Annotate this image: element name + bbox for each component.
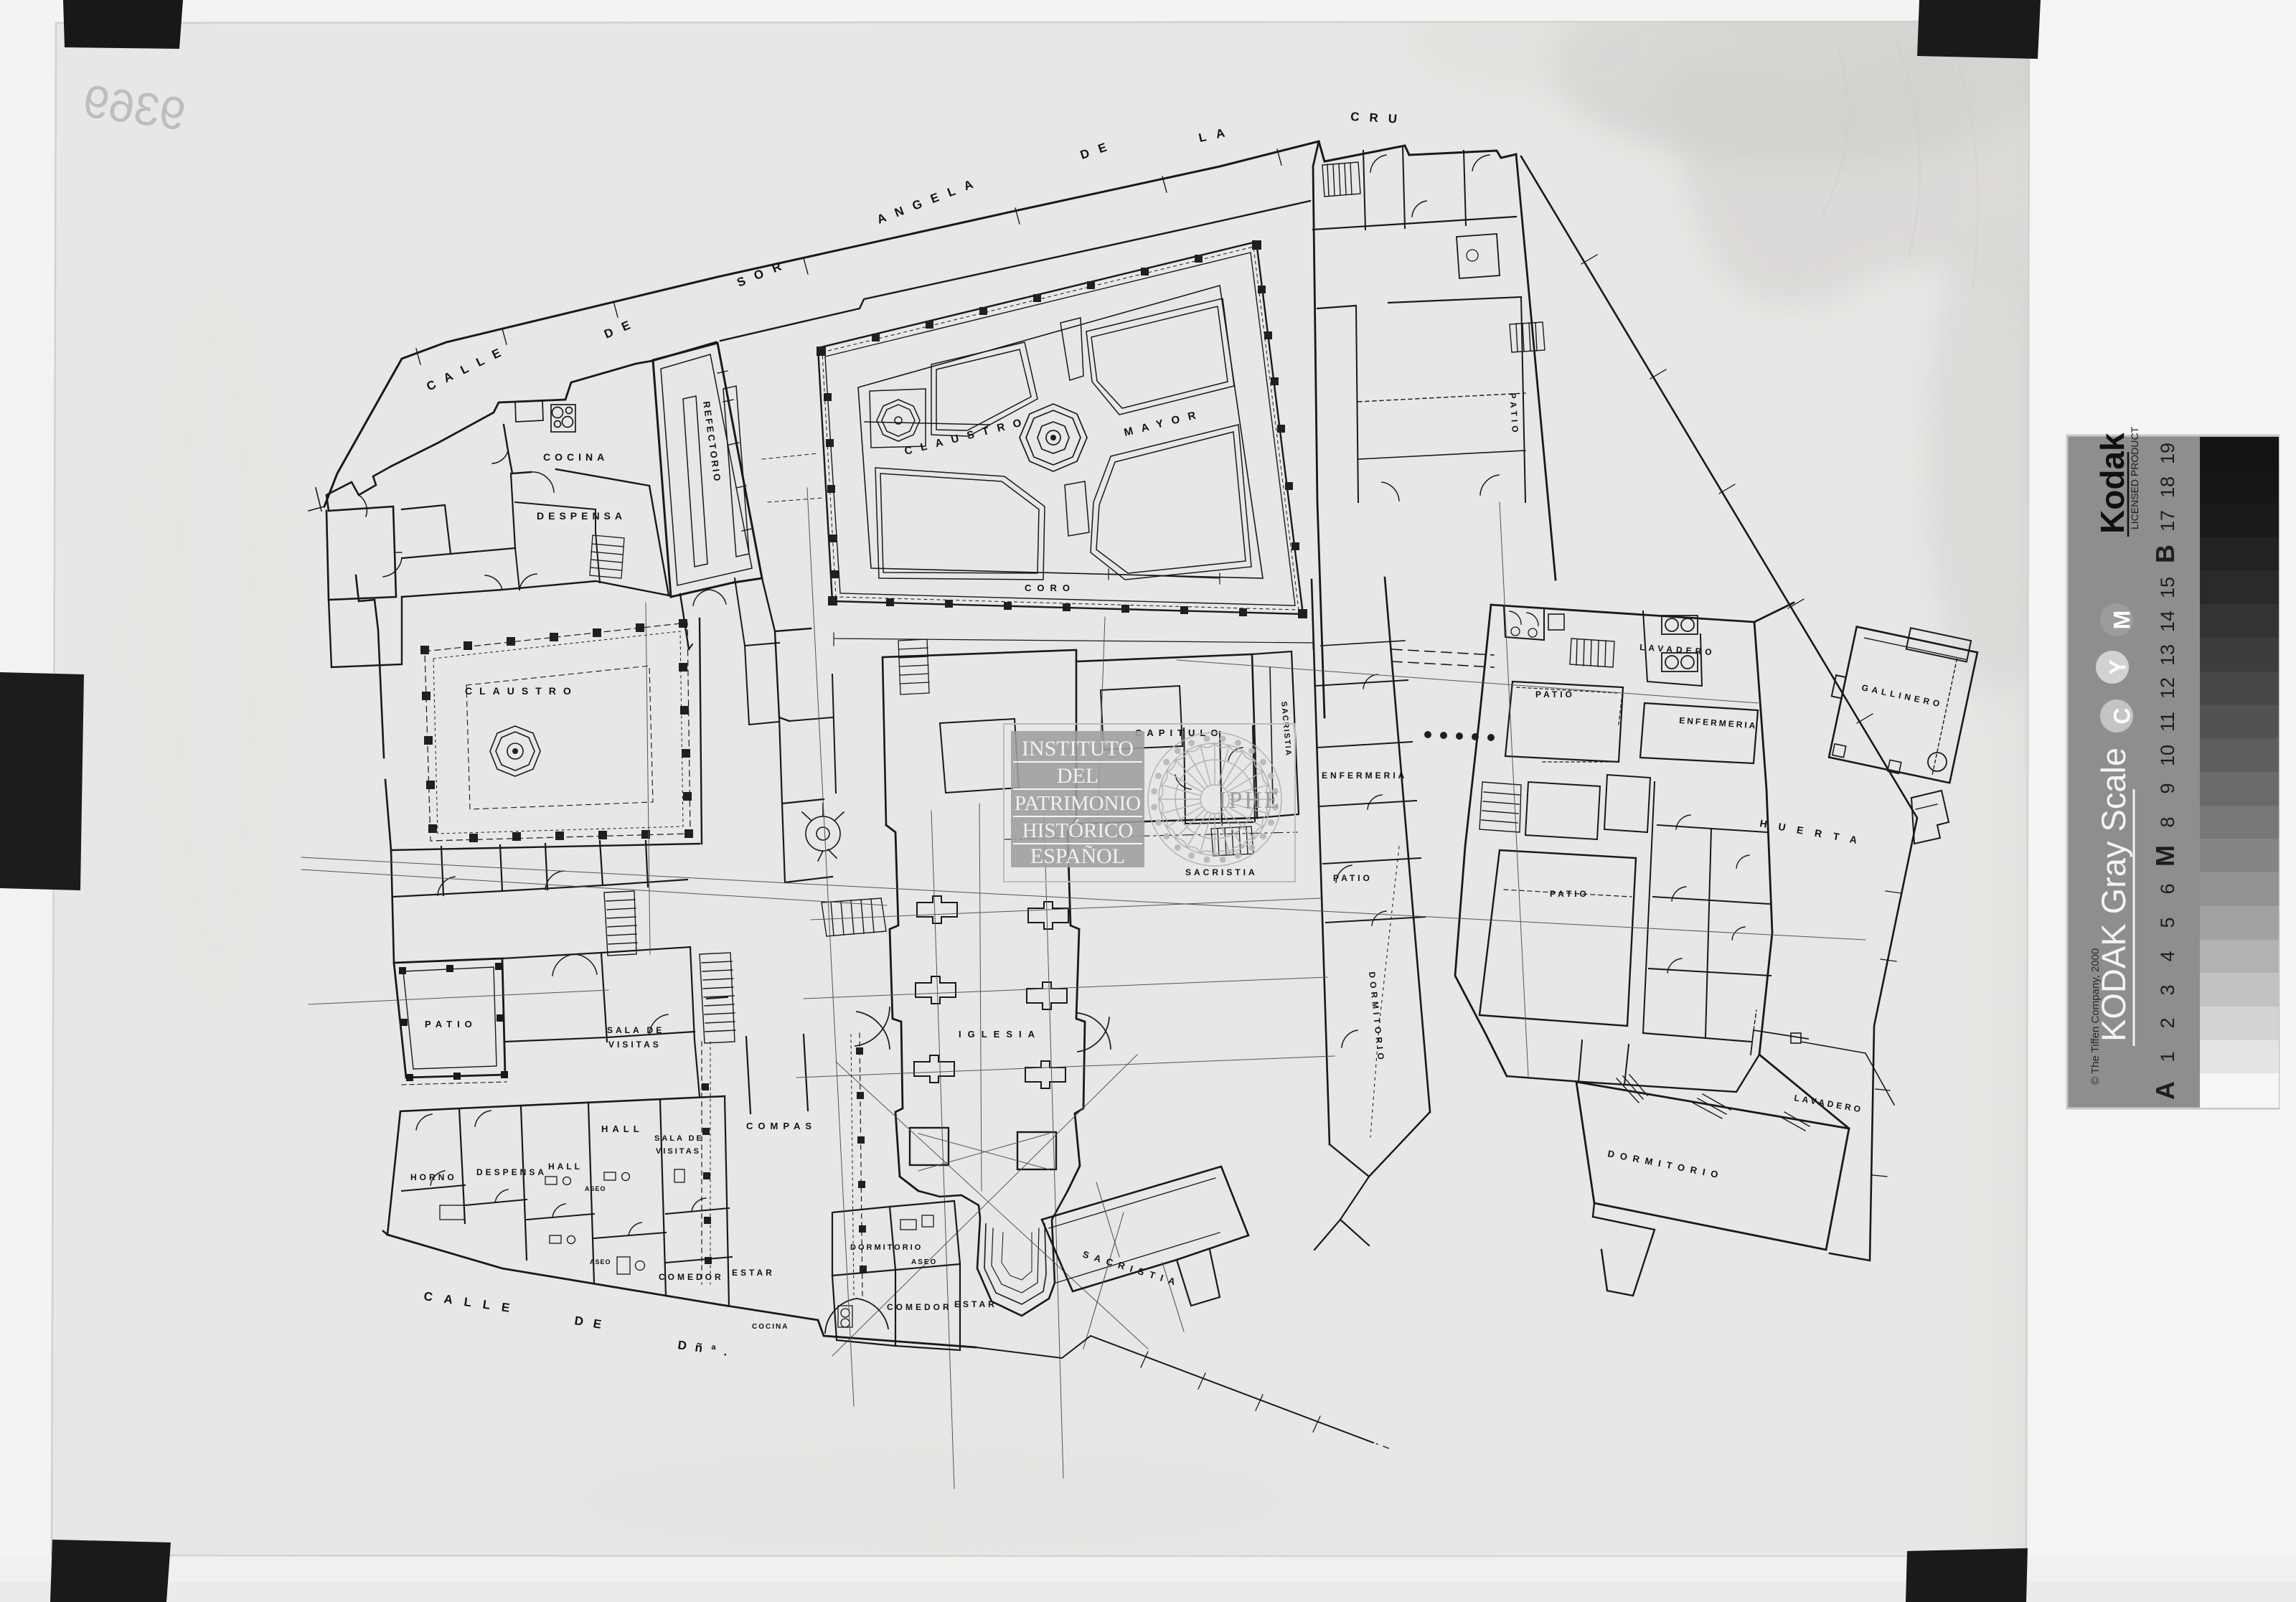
svg-text:SALA DE: SALA DE (607, 1025, 664, 1035)
svg-text:ASEO: ASEO (585, 1185, 606, 1192)
svg-text:4: 4 (2157, 951, 2178, 961)
svg-text:CLAUSTRO: CLAUSTRO (465, 685, 578, 697)
svg-text:HORNO: HORNO (410, 1172, 457, 1182)
svg-text:DORMITORIO: DORMITORIO (850, 1243, 923, 1252)
svg-text:DEL: DEL (1057, 764, 1098, 788)
svg-text:INSTITUTO: INSTITUTO (1022, 737, 1134, 760)
svg-text:Kodak: Kodak (2094, 433, 2131, 534)
svg-text:15: 15 (2157, 577, 2178, 598)
svg-text:SALA DE: SALA DE (654, 1134, 704, 1143)
svg-text:17: 17 (2157, 510, 2178, 532)
svg-text:2: 2 (2157, 1017, 2178, 1028)
svg-text:IPHE: IPHE (1218, 787, 1281, 814)
svg-text:COCINA: COCINA (543, 451, 608, 463)
svg-text:© The Tiffen Company, 2000: © The Tiffen Company, 2000 (2089, 948, 2102, 1085)
svg-text:DESPENSA: DESPENSA (476, 1167, 547, 1177)
svg-text:B: B (2150, 545, 2180, 563)
svg-text:PATIO: PATIO (425, 1019, 477, 1029)
svg-text:HISTÓRICO: HISTÓRICO (1022, 819, 1134, 842)
svg-text:Y: Y (2104, 659, 2130, 674)
svg-text:14: 14 (2157, 611, 2178, 632)
svg-text:9: 9 (2157, 783, 2178, 793)
svg-text:PATRIMONIO: PATRIMONIO (1015, 792, 1141, 815)
svg-text:SACRISTIA: SACRISTIA (1185, 867, 1258, 877)
svg-text:VISITAS: VISITAS (608, 1040, 662, 1050)
svg-text:HALL: HALL (548, 1162, 583, 1172)
svg-text:12: 12 (2157, 677, 2178, 699)
svg-text:19: 19 (2157, 443, 2178, 464)
svg-text:ESTAR: ESTAR (732, 1268, 775, 1278)
svg-text:ESTAR: ESTAR (954, 1299, 997, 1309)
svg-text:ASEO: ASEO (911, 1258, 937, 1266)
svg-text:CORO: CORO (1025, 583, 1076, 593)
svg-text:PATIO: PATIO (1535, 689, 1575, 699)
svg-text:COMEDOR: COMEDOR (659, 1272, 724, 1282)
svg-text:ESPAÑOL: ESPAÑOL (1030, 844, 1125, 868)
svg-text:ASEO: ASEO (590, 1258, 611, 1266)
svg-text:ENFERMERIA: ENFERMERIA (1322, 771, 1407, 781)
svg-text:COMPAS: COMPAS (746, 1121, 817, 1131)
svg-text:COMEDOR: COMEDOR (887, 1302, 952, 1312)
svg-text:VISITAS: VISITAS (656, 1147, 701, 1156)
svg-text:A: A (2150, 1081, 2180, 1100)
svg-text:DESPENSA: DESPENSA (537, 510, 626, 522)
svg-text:HALL: HALL (601, 1123, 644, 1134)
svg-text:PATIO: PATIO (1333, 873, 1373, 883)
svg-text:6: 6 (2157, 883, 2178, 894)
svg-text:5: 5 (2157, 917, 2178, 928)
svg-text:10: 10 (2157, 745, 2178, 766)
svg-text:COCINA: COCINA (752, 1323, 789, 1331)
svg-text:1: 1 (2157, 1051, 2178, 1062)
svg-text:IGLESIA: IGLESIA (959, 1029, 1041, 1040)
svg-text:LICENSED PRODUCT: LICENSED PRODUCT (2129, 426, 2140, 529)
svg-text:C: C (2109, 707, 2135, 724)
svg-text:13: 13 (2157, 644, 2178, 666)
svg-text:18: 18 (2157, 476, 2178, 498)
svg-text:3: 3 (2157, 984, 2178, 995)
svg-text:11: 11 (2157, 712, 2178, 732)
svg-text:M: M (2109, 611, 2135, 630)
svg-text:M: M (2150, 845, 2180, 867)
svg-text:PATIO: PATIO (1550, 889, 1589, 899)
svg-text:8: 8 (2157, 816, 2178, 827)
